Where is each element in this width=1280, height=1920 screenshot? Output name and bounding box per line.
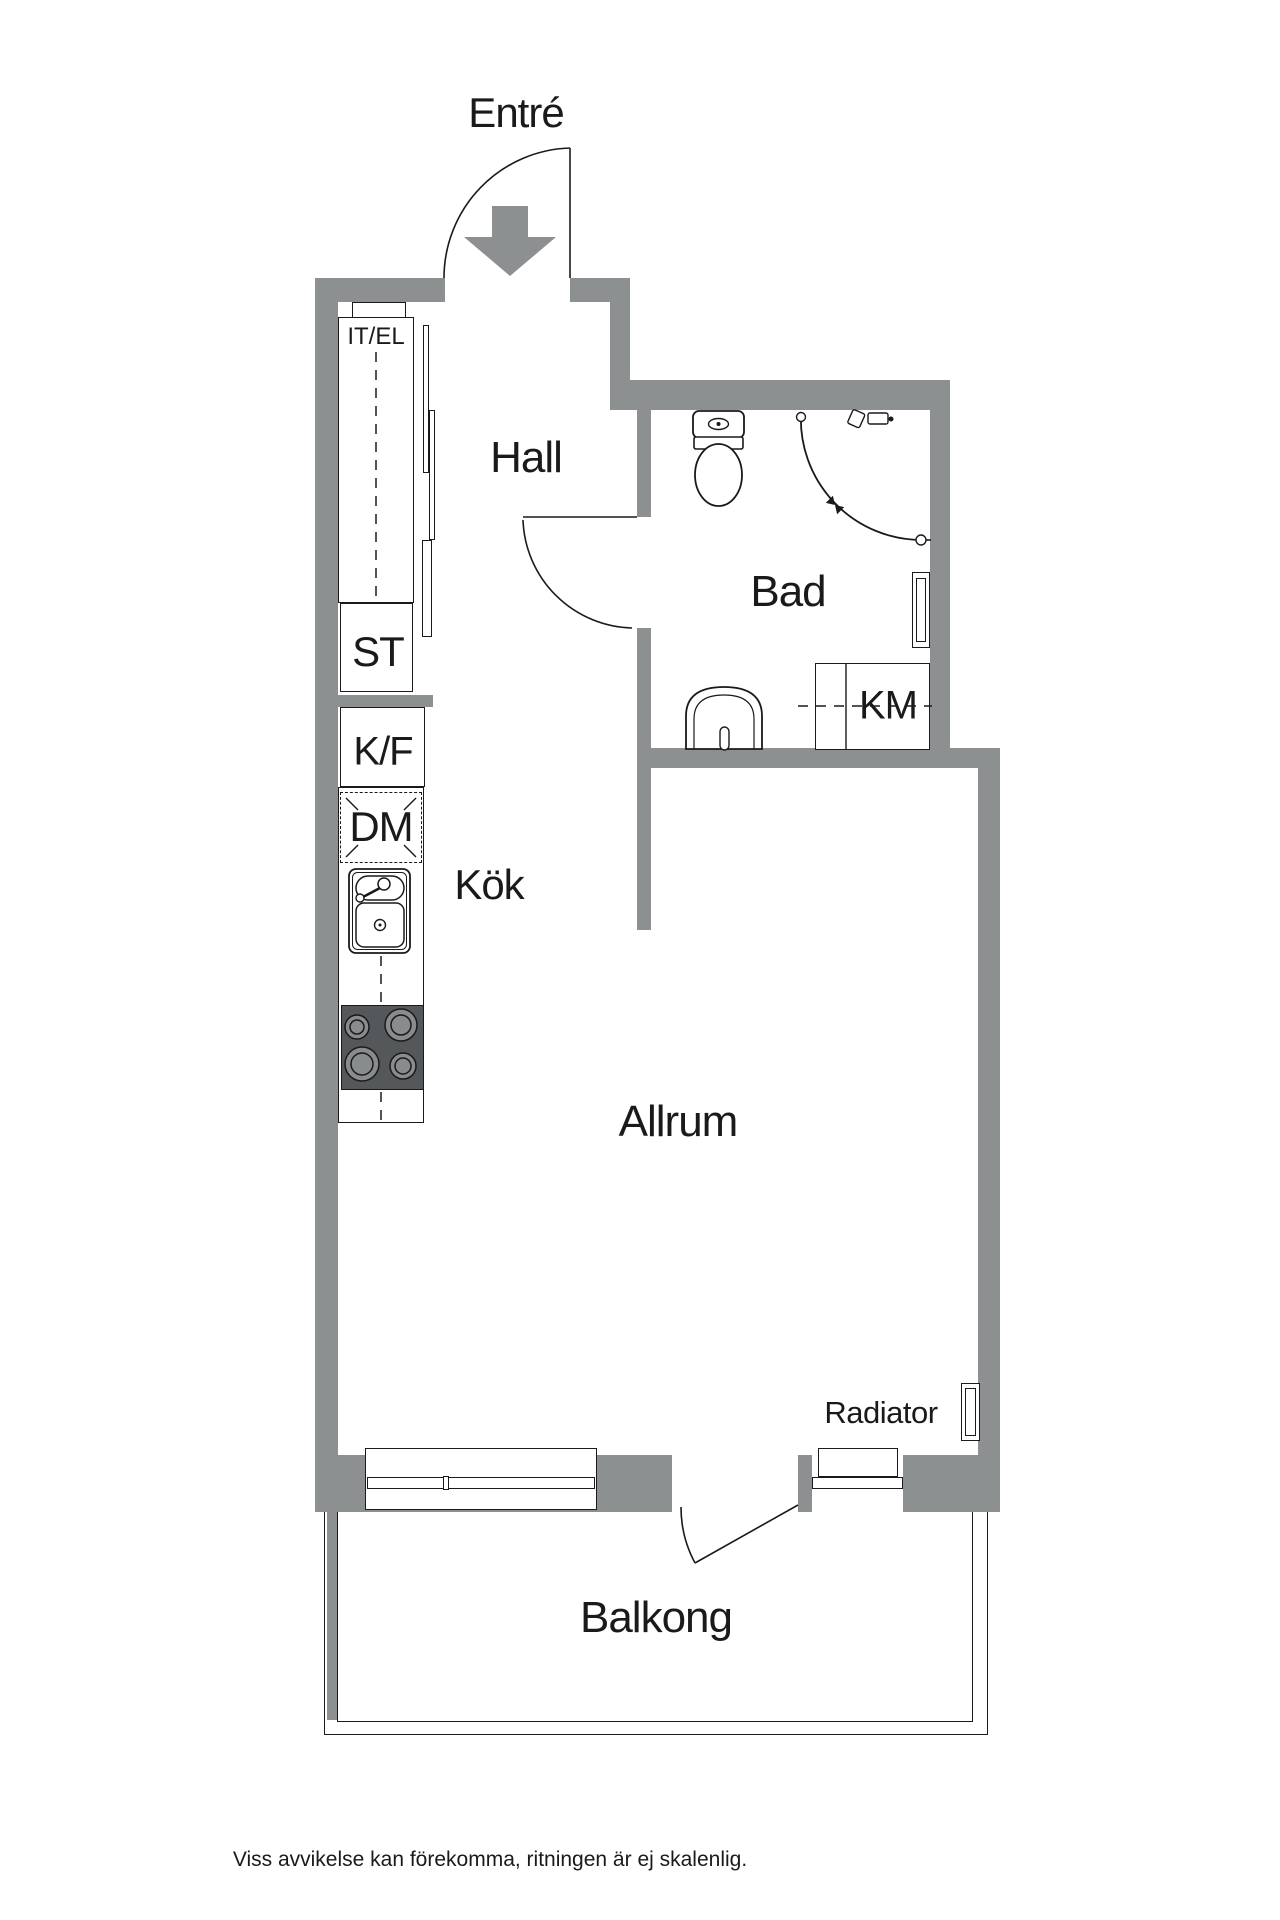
living-room-window-mullion xyxy=(443,1476,449,1490)
room-label-entre: Entré xyxy=(468,89,563,137)
radiator-box xyxy=(818,1448,898,1477)
fixture-label-kf: K/F xyxy=(353,730,412,775)
wall-bad-right xyxy=(930,380,950,763)
disclaimer-text: Viss avvikelse kan förekomma, ritningen … xyxy=(233,1848,747,1872)
sliding-door-panel xyxy=(422,540,432,637)
sliding-door-panel xyxy=(429,410,435,540)
room-label-kok: Kök xyxy=(454,861,523,909)
bathroom-shelf-inner xyxy=(916,578,926,642)
floorplan: Entré Hall Bad Kök Allrum Balkong IT/EL … xyxy=(0,0,1280,1920)
living-room-window-glass xyxy=(367,1477,595,1489)
fixture-label-dm: DM xyxy=(349,803,412,851)
stove-icon xyxy=(341,1005,424,1090)
wall-bad-hall-upper xyxy=(637,410,651,517)
wall-left xyxy=(315,278,338,1512)
shower-mixer-icon xyxy=(847,409,893,428)
room-label-allrum: Allrum xyxy=(619,1097,738,1147)
entrance-door-swing-icon xyxy=(444,148,570,278)
fixture-label-st: ST xyxy=(352,628,404,676)
wall-niche-inner xyxy=(965,1388,976,1436)
itel-niche xyxy=(352,302,406,318)
radiator-window-glass xyxy=(812,1477,903,1489)
wall-bad-top xyxy=(610,380,950,410)
itel-closet xyxy=(338,317,414,603)
fixture-label-itel: IT/EL xyxy=(347,323,404,351)
wall-allrum-right xyxy=(978,763,1000,1512)
room-label-balkong: Balkong xyxy=(580,1593,732,1643)
wall-st-stub xyxy=(338,695,433,707)
room-label-bad: Bad xyxy=(750,567,825,617)
fixture-label-radiator: Radiator xyxy=(824,1395,937,1431)
shower-icon xyxy=(797,409,932,545)
wall-bad-bottom xyxy=(637,748,1000,768)
balcony-door-opening xyxy=(672,1452,798,1515)
entrance-arrow-icon xyxy=(464,206,556,276)
toilet-icon xyxy=(693,411,744,506)
washbasin-icon xyxy=(686,687,762,750)
fixture-label-km: KM xyxy=(859,684,917,729)
bathroom-door-swing-icon xyxy=(523,517,637,628)
room-label-hall: Hall xyxy=(490,433,562,483)
wall-bad-hall-lower xyxy=(637,628,651,930)
